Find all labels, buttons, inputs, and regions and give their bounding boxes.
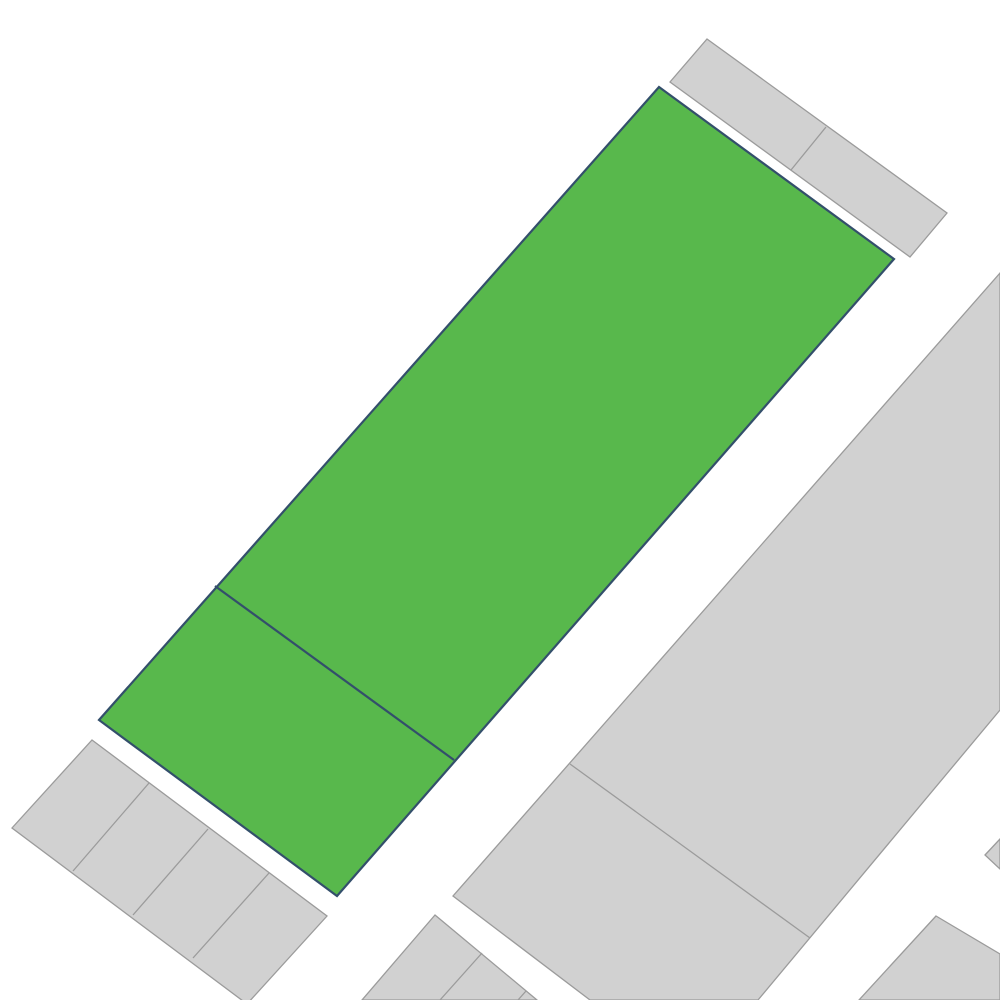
- parcel-map-canvas[interactable]: [0, 0, 1000, 1000]
- gray-parcel-bottom-right-corner[interactable]: [859, 916, 1000, 1000]
- parcel-layer: [12, 39, 1000, 1000]
- gray-parcel-right-edge-sliver[interactable]: [985, 839, 1000, 869]
